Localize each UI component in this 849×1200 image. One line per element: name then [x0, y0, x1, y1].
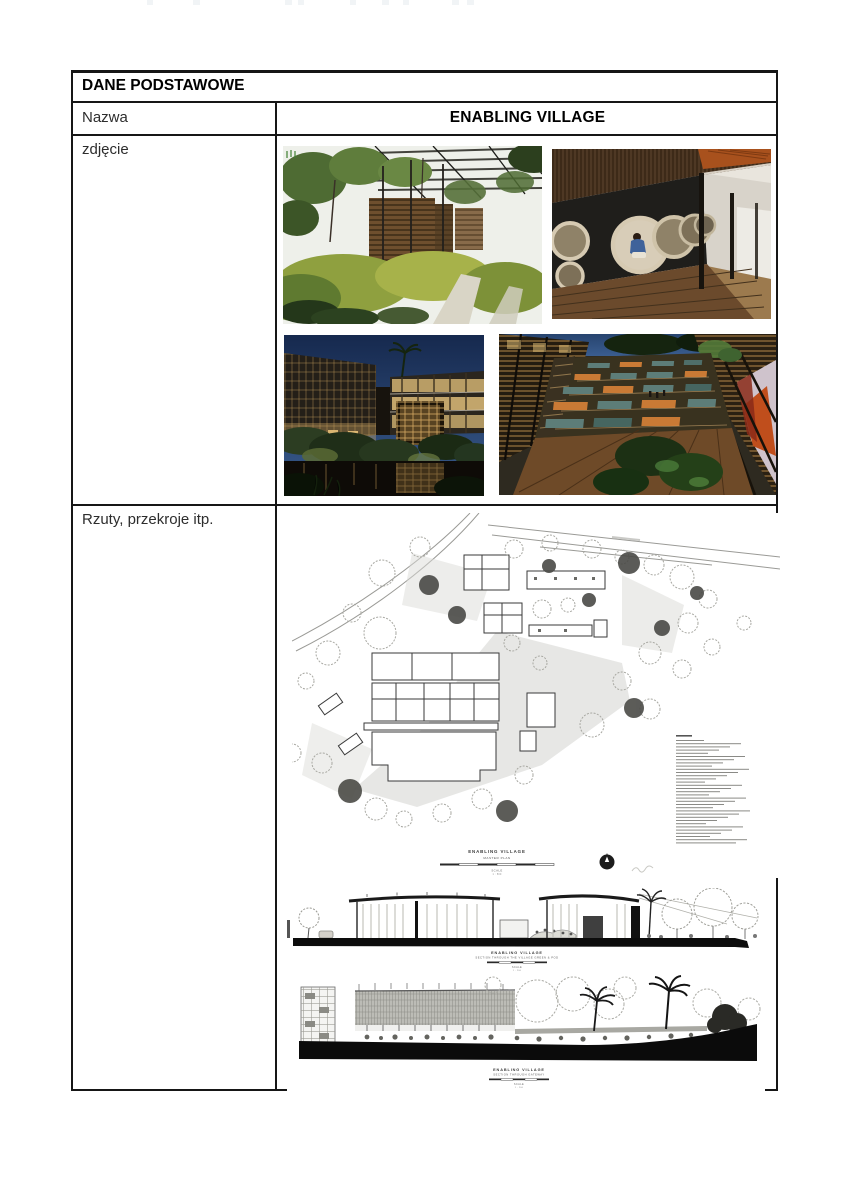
scan-artifact	[350, 0, 356, 5]
row-divider	[73, 101, 776, 103]
photo-pond-courtyard-night	[284, 335, 484, 496]
scan-artifact	[403, 0, 409, 5]
section1-scale-bar	[487, 962, 547, 964]
scan-artifact	[193, 0, 200, 5]
row-divider	[73, 504, 776, 506]
label-rzuty: Rzuty, przekroje itp.	[82, 511, 213, 528]
section2-title: ENABLING VILLAGE	[493, 1068, 545, 1072]
scan-artifact	[285, 0, 292, 5]
column-divider	[275, 101, 277, 1089]
plan-subtitle: MASTER PLAN	[483, 856, 510, 860]
photo-pipe-wall-walkway	[552, 149, 771, 319]
section1-scale-note: 1 : 200	[513, 970, 522, 972]
plan-title: ENABLING VILLAGE	[468, 849, 526, 854]
scan-artifact	[382, 0, 389, 5]
photo-garden-pavilion	[283, 146, 542, 324]
scan-artifact	[467, 0, 474, 5]
scan-artifact	[147, 0, 153, 5]
scanned-document-page: DANE PODSTAWOWE Nazwa ENABLING VILLAGE z…	[0, 0, 849, 1200]
scan-artifact	[452, 0, 459, 5]
data-table: DANE PODSTAWOWE Nazwa ENABLING VILLAGE z…	[71, 70, 778, 1091]
section2-subtitle: SECTION THROUGH GATEWAY	[493, 1073, 544, 1077]
section2-scale-note: 1 : 200	[515, 1087, 524, 1089]
section2-scale-bar	[489, 1079, 549, 1081]
drawing-master-plan: ENABLING VILLAGE MASTER PLAN SCALE 1 : 5…	[292, 513, 780, 878]
drawing-section-2: ENABLING VILLAGE SECTION THROUGH GATEWAY…	[287, 975, 765, 1093]
section1-title: ENABLING VILLAGE	[491, 951, 543, 955]
section1-subtitle: SECTION THROUGH THE VILLAGE GREEN & POD	[475, 956, 558, 960]
plan-scale-bar	[440, 864, 554, 866]
row-divider	[73, 134, 776, 136]
plan-scale-label: SCALE	[491, 869, 502, 873]
label-zdjecie: zdjęcie	[82, 141, 129, 158]
scan-artifact	[298, 0, 304, 5]
section2-scale-label: SCALE	[514, 1083, 524, 1086]
section1-scale-label: SCALE	[512, 966, 522, 969]
label-nazwa: Nazwa	[82, 109, 128, 126]
plan-scale-note: 1 : 500	[492, 874, 502, 876]
project-name: ENABLING VILLAGE	[277, 109, 778, 127]
drawing-section-1: ENABLING VILLAGE SECTION THROUGH THE VIL…	[287, 888, 765, 978]
table-header: DANE PODSTAWOWE	[82, 77, 244, 95]
photo-terraced-amphitheatre	[499, 334, 776, 495]
